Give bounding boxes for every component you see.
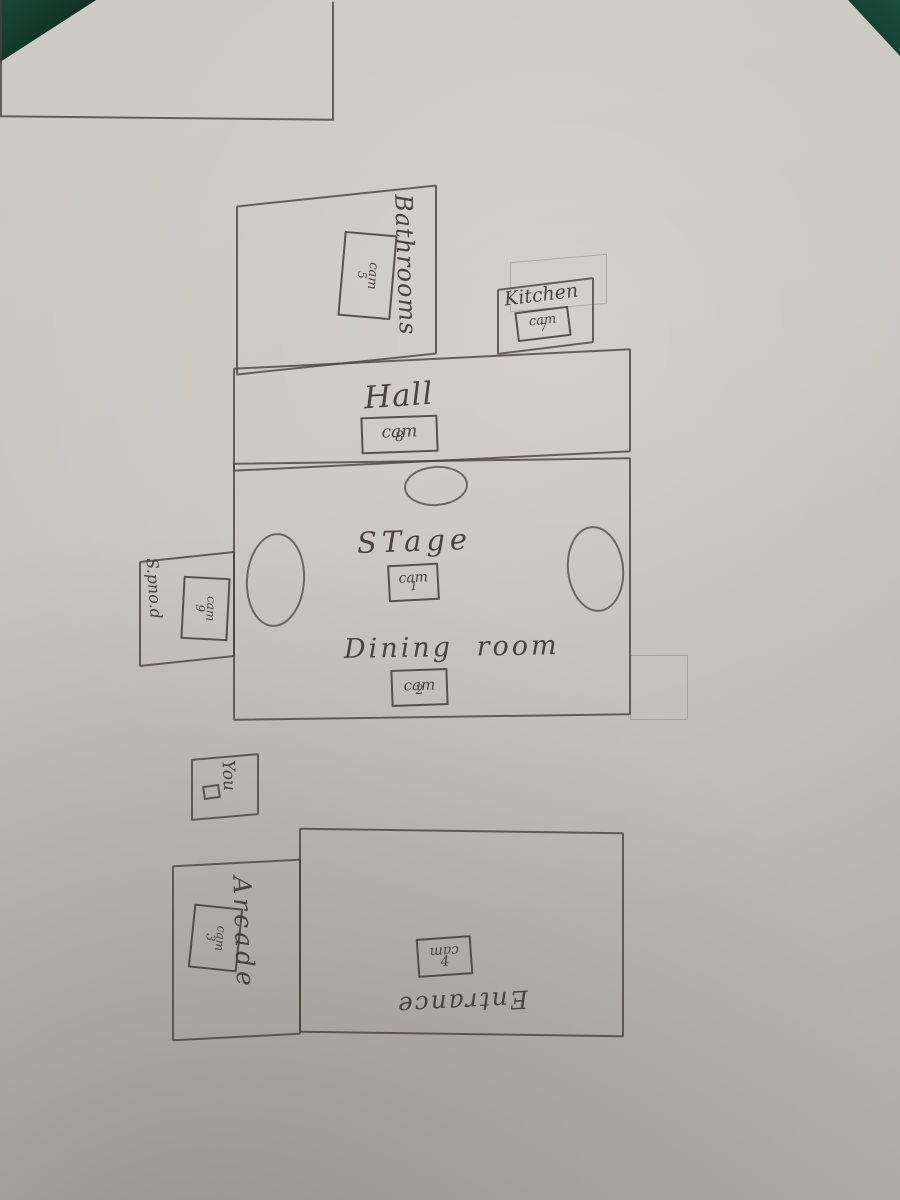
label-dining-room: Dining room <box>344 630 560 665</box>
camera-box-entrance: cam 4 <box>416 935 474 978</box>
camera-label-side: cam 9 <box>175 585 236 631</box>
label-hall: Hall <box>363 376 435 417</box>
camera-label-kitchen: cam 7 <box>528 314 557 335</box>
camera-box-arcade: cam 3 <box>188 904 243 973</box>
photo-of-paper-map: Bathrooms cam 5 Kitchen cam 7 Hall cam 8… <box>0 0 900 1200</box>
camera-box-side: cam 9 <box>180 576 230 641</box>
camera-label-stage: cam 1 <box>398 573 428 593</box>
camera-box-dining: cam 2 <box>390 668 448 707</box>
camera-box-hall: cam 8 <box>360 415 438 455</box>
camera-label-arcade: cam 3 <box>183 912 247 963</box>
erased-side-outline <box>630 655 688 720</box>
camera-box-stage: cam 1 <box>387 563 440 603</box>
camera-label-hall: cam 8 <box>381 424 417 445</box>
label-stage: STage <box>356 522 472 560</box>
table-surface-corner-right <box>848 0 900 56</box>
camera-box-bathrooms: cam 5 <box>337 231 397 320</box>
corridor <box>0 0 334 121</box>
label-you: You <box>218 760 241 817</box>
camera-label-bathrooms: cam 5 <box>325 248 410 304</box>
you-marker-square <box>202 784 221 800</box>
camera-label-dining: cam 2 <box>403 678 435 697</box>
